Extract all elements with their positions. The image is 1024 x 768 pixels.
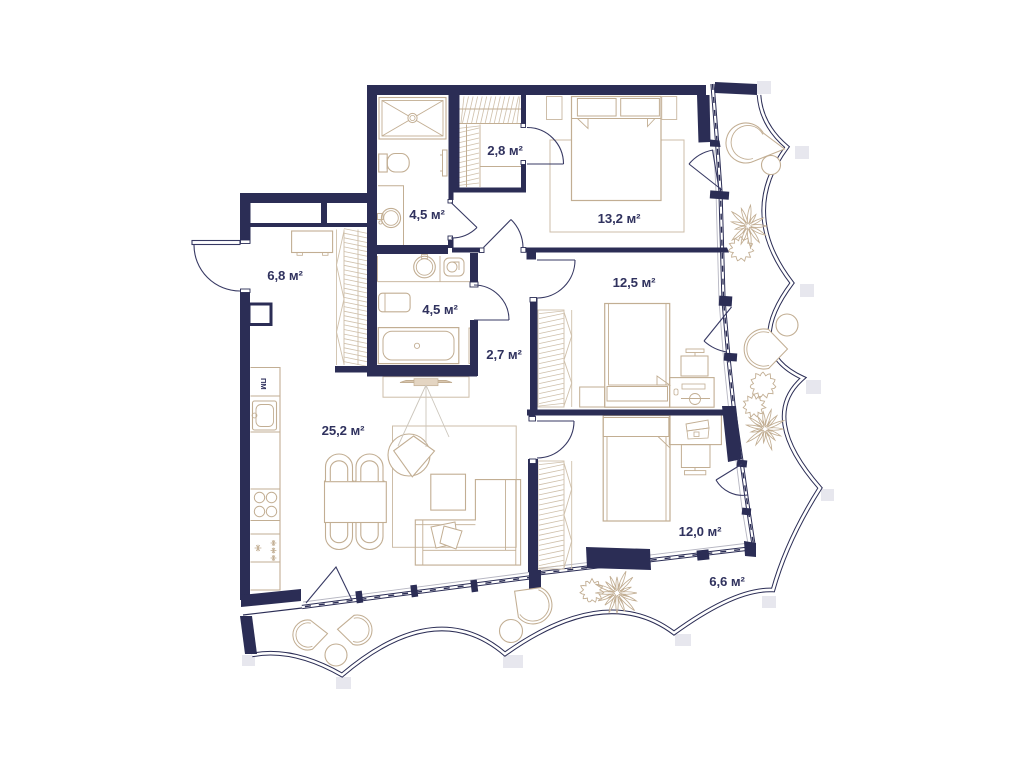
- svg-text:12,5 м²: 12,5 м²: [613, 275, 656, 290]
- svg-text:13,2 м²: 13,2 м²: [598, 211, 641, 226]
- svg-text:4,5 м²: 4,5 м²: [409, 207, 445, 222]
- svg-text:2,8 м²: 2,8 м²: [487, 143, 523, 158]
- svg-text:6,8 м²: 6,8 м²: [267, 268, 303, 283]
- svg-text:12,0 м²: 12,0 м²: [679, 524, 722, 539]
- svg-text:25,2 м²: 25,2 м²: [322, 423, 365, 438]
- svg-text:6,6 м²: 6,6 м²: [709, 574, 745, 589]
- svg-text:4,5 м²: 4,5 м²: [422, 302, 458, 317]
- svg-text:2,7 м²: 2,7 м²: [486, 347, 522, 362]
- svg-text:ПМ: ПМ: [259, 378, 268, 390]
